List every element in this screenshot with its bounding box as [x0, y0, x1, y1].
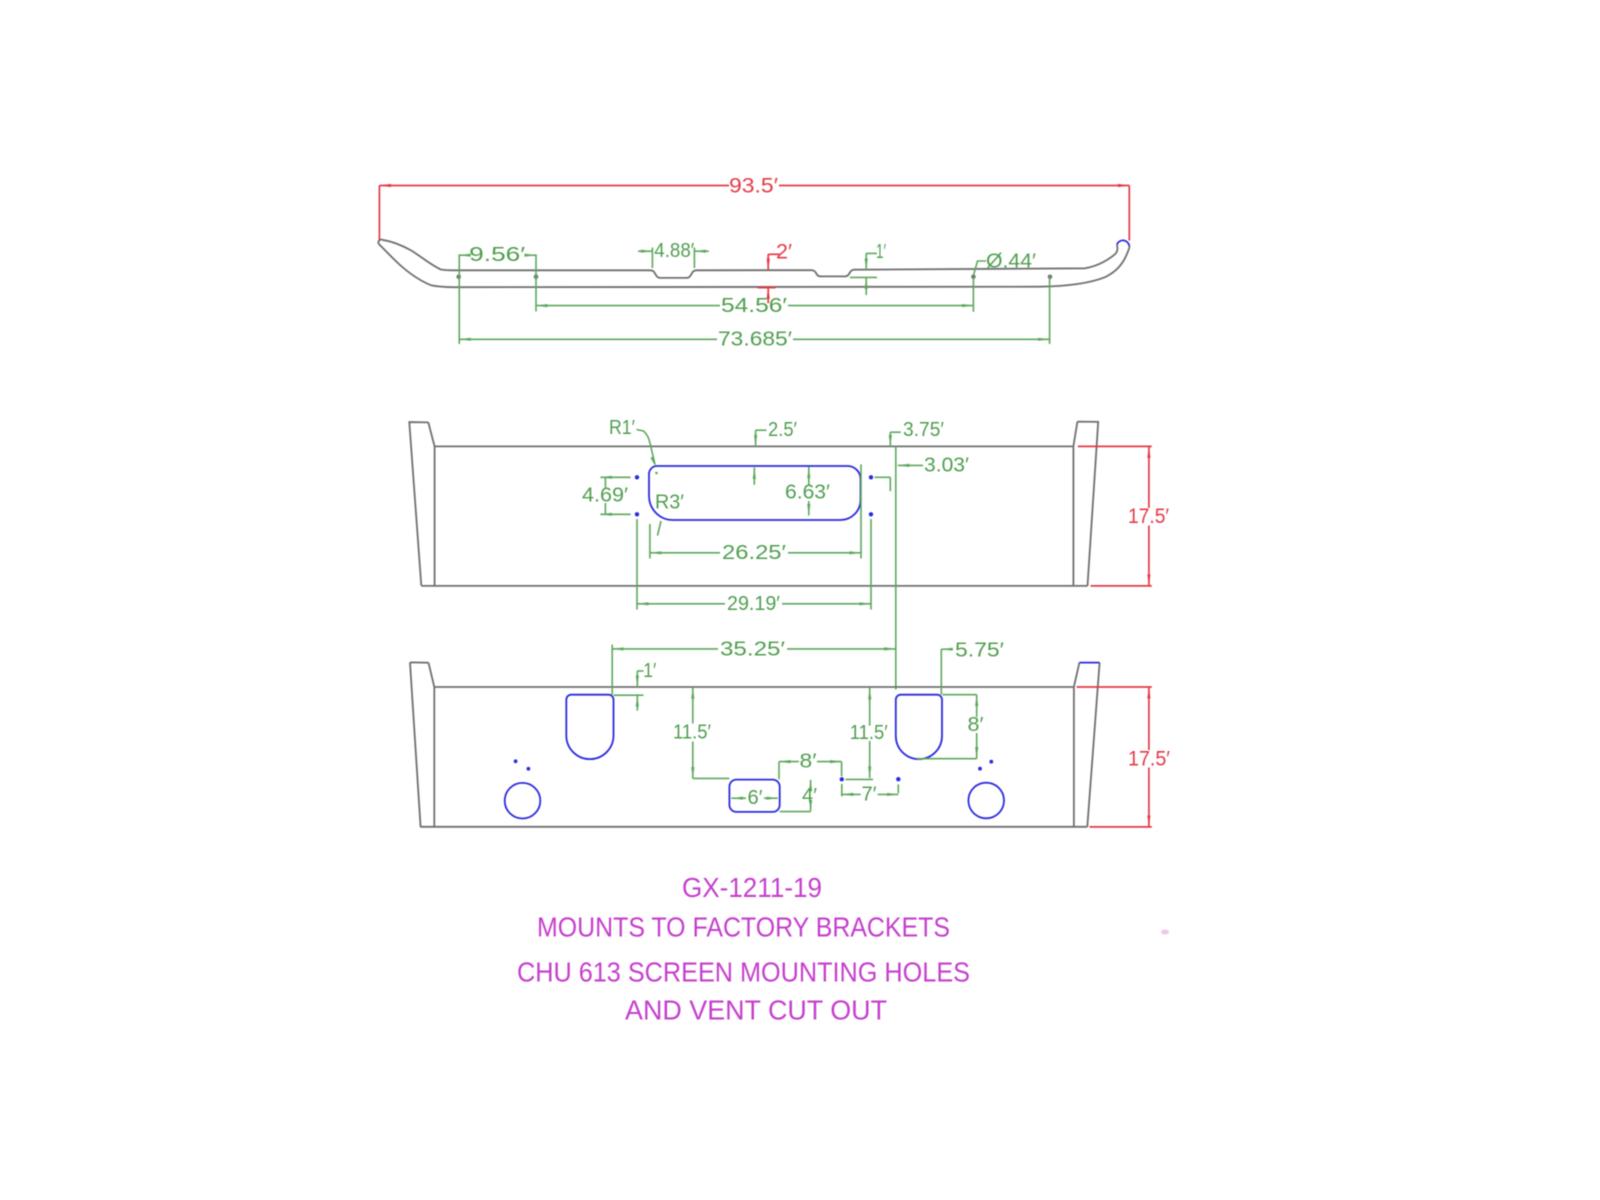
svg-text:Ø.44′: Ø.44′	[986, 250, 1036, 272]
svg-text:2.5′: 2.5′	[768, 419, 797, 441]
svg-text:8′: 8′	[800, 750, 817, 772]
svg-text:R3′: R3′	[655, 492, 684, 514]
svg-text:CHU 613 SCREEN MOUNTING HOLES: CHU 613 SCREEN MOUNTING HOLES	[517, 957, 970, 988]
svg-text:11.5′: 11.5′	[673, 721, 711, 743]
svg-text:73.685′: 73.685′	[718, 329, 792, 351]
svg-text:54.56′: 54.56′	[721, 295, 787, 317]
svg-text:1′: 1′	[876, 241, 886, 263]
svg-text:6.63′: 6.63′	[785, 482, 830, 504]
svg-text:1′: 1′	[643, 660, 656, 682]
svg-text:2′: 2′	[776, 241, 792, 264]
svg-text:GX-1211-19: GX-1211-19	[682, 872, 822, 903]
svg-text:17.5′: 17.5′	[1128, 505, 1169, 528]
svg-text:17.5′: 17.5′	[1128, 747, 1170, 770]
svg-text:MOUNTS TO FACTORY BRACKETS: MOUNTS TO FACTORY BRACKETS	[537, 912, 950, 943]
svg-text:35.25′: 35.25′	[720, 639, 785, 661]
svg-text:5.75′: 5.75′	[955, 640, 1004, 662]
svg-text:29.19′: 29.19′	[727, 593, 780, 615]
svg-text:4.69′: 4.69′	[582, 484, 628, 506]
svg-text:4′: 4′	[802, 785, 817, 807]
svg-text:26.25′: 26.25′	[722, 542, 786, 564]
svg-text:4.88′: 4.88′	[654, 240, 694, 262]
svg-text:11.5′: 11.5′	[850, 722, 888, 744]
svg-text:R1′: R1′	[609, 417, 635, 439]
svg-text:8′: 8′	[968, 714, 984, 736]
svg-text:6′: 6′	[748, 787, 763, 809]
svg-text:3.03′: 3.03′	[924, 455, 969, 477]
svg-text:AND VENT CUT OUT: AND VENT CUT OUT	[625, 995, 887, 1026]
svg-text:3.75′: 3.75′	[903, 419, 944, 441]
svg-text:7′: 7′	[862, 784, 877, 806]
svg-text:9.56′: 9.56′	[469, 244, 525, 266]
svg-text:93.5′: 93.5′	[729, 174, 778, 197]
